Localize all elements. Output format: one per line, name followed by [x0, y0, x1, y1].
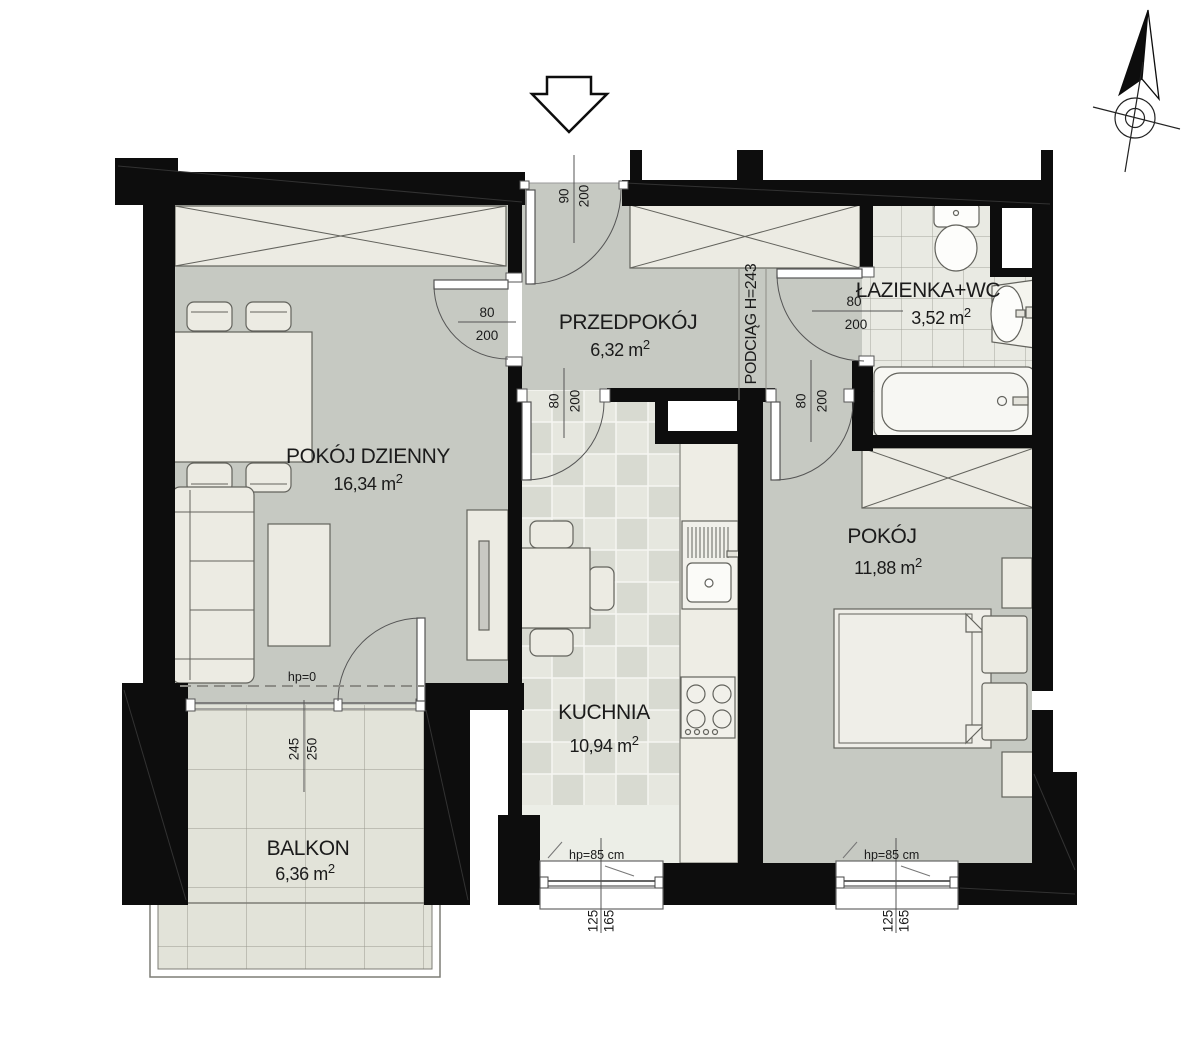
kitchen-dim-height: 200	[568, 390, 583, 413]
hall-label: PRZEDPOKÓJ	[559, 311, 697, 334]
pillow	[982, 683, 1027, 740]
hall-area: 6,32 m2	[590, 337, 650, 360]
coffee-table	[268, 524, 330, 646]
bathroom-label: ŁAZIENKA+WC	[856, 279, 1001, 302]
wall-stub	[737, 150, 763, 182]
door-leaf	[777, 269, 862, 278]
kitchen-sink	[682, 521, 740, 609]
shaft-niche-frame	[667, 400, 738, 432]
living-room-label: POKÓJ DZIENNY	[286, 445, 450, 468]
bedroom-window-dim-height: 165	[897, 910, 912, 933]
door-leaf	[434, 280, 508, 289]
kitchen-table	[518, 548, 590, 628]
balcony-floor-skirt	[158, 905, 432, 969]
wardrobe-hall	[630, 205, 860, 268]
bedroom-window-hp-label: hp=85 cm	[864, 848, 919, 862]
living-room-area: 16,34 m2	[333, 471, 402, 494]
sofa	[172, 487, 254, 683]
balcony-dim-width: 245	[287, 738, 302, 761]
pillow	[982, 616, 1027, 673]
threshold-label: hp=0	[288, 670, 316, 684]
dining-chair	[187, 302, 232, 331]
floor-plan: 90 200 80 200 80 200 80 200 80 200 245 2…	[0, 0, 1200, 1060]
kitchen-counter	[680, 443, 738, 863]
wall-recess	[1032, 691, 1053, 710]
kitchen-window-dim-height: 165	[602, 910, 617, 933]
bedroom-dim-width: 80	[794, 393, 809, 408]
door-leaf	[417, 618, 425, 701]
kitchen-chair	[530, 629, 573, 656]
balcony-label: BALKON	[267, 837, 350, 860]
living-dim-height: 200	[476, 328, 499, 343]
bathtub	[874, 367, 1035, 437]
nightstand	[1002, 752, 1033, 797]
kitchen-area: 10,94 m2	[569, 733, 638, 756]
living-dim-width: 80	[479, 305, 494, 320]
bedroom-label: POKÓJ	[847, 525, 916, 548]
nightstand	[1002, 558, 1032, 608]
wardrobe-living	[175, 206, 506, 266]
door-leaf	[526, 190, 535, 284]
balcony-area: 6,36 m2	[275, 861, 335, 884]
faucet-icon	[1013, 397, 1028, 405]
entrance-dim-width: 90	[557, 188, 572, 203]
beam-label: PODCIĄG H=243	[743, 263, 760, 384]
north-arrow-icon	[1093, 10, 1180, 172]
stove	[681, 677, 735, 738]
bedroom-dim-height: 200	[815, 390, 830, 413]
kitchen-dim-width: 80	[547, 393, 562, 408]
entrance-arrow-icon	[532, 77, 607, 132]
entrance-dim-height: 200	[577, 185, 592, 208]
bath-niche	[1002, 208, 1033, 268]
wardrobe-bedroom	[862, 448, 1034, 508]
bathroom-area: 3,52 m2	[911, 305, 971, 328]
dining-chair	[246, 302, 291, 331]
bedroom-area: 11,88 m2	[854, 555, 922, 578]
bathroom-dim-height: 200	[845, 317, 868, 332]
door-leaf	[522, 402, 531, 480]
dining-chair	[246, 463, 291, 492]
bedroom-window	[836, 861, 958, 909]
balcony-dim-height: 250	[305, 738, 320, 761]
tv-icon	[479, 541, 489, 630]
kitchen-label: KUCHNIA	[558, 701, 650, 724]
floor-plan-page: 90 200 80 200 80 200 80 200 80 200 245 2…	[0, 0, 1200, 1060]
kitchen-window-dim-width: 125	[586, 910, 601, 933]
wall-stub	[630, 150, 642, 182]
faucet-icon	[1016, 310, 1025, 317]
door-leaf	[771, 402, 780, 480]
tv-unit	[467, 510, 508, 660]
bedroom-window-dim-width: 125	[881, 910, 896, 933]
wall-stub	[1041, 150, 1053, 182]
toilet	[934, 203, 979, 271]
kitchen-chair	[530, 521, 573, 548]
kitchen-chair	[589, 567, 614, 610]
dining-table	[173, 332, 312, 462]
kitchen-window-hp-label: hp=85 cm	[569, 848, 624, 862]
